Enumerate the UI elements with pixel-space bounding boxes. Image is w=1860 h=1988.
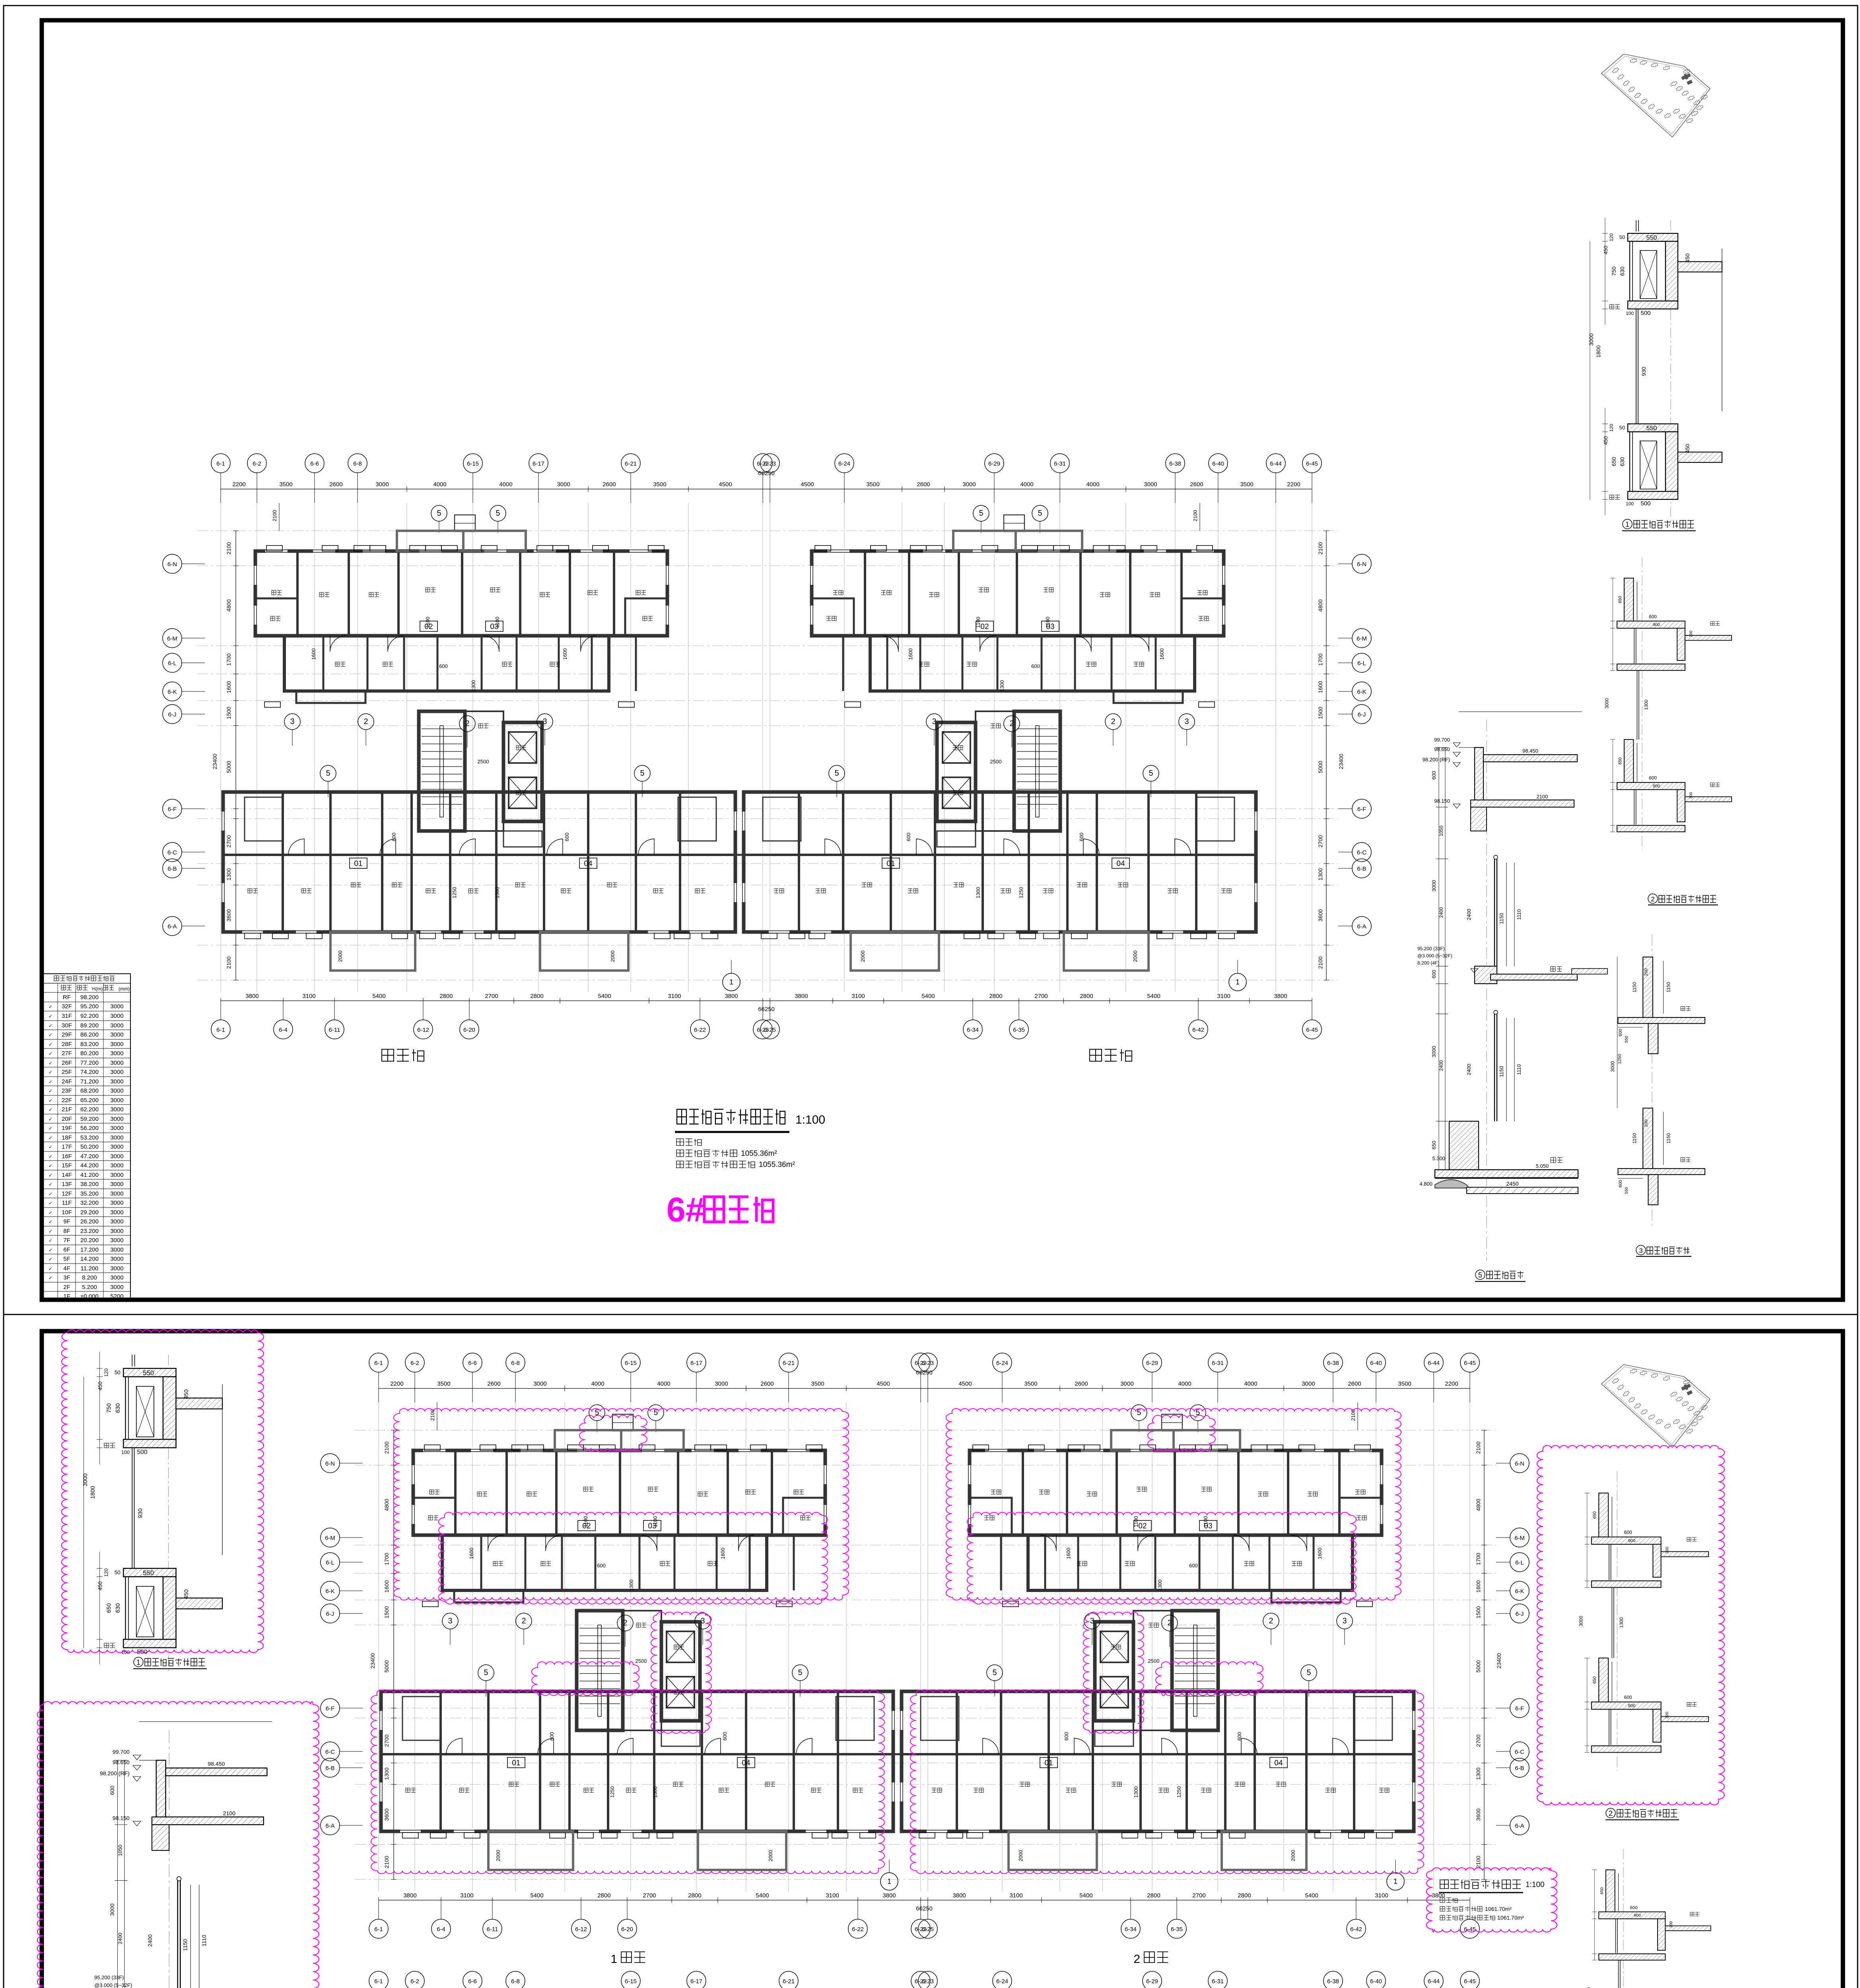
svg-text:95.200 (33F): 95.200 (33F) [94,1974,124,1980]
svg-text:29.200: 29.200 [80,1209,99,1216]
svg-text:2400: 2400 [1466,909,1472,920]
svg-text:1150: 1150 [1632,1133,1637,1144]
svg-text:1:100: 1:100 [795,1113,825,1126]
svg-text:3000: 3000 [110,1228,123,1235]
svg-text:2F: 2F [63,1284,70,1291]
svg-text:3000: 3000 [1578,1616,1584,1627]
svg-text:100: 100 [121,1650,130,1655]
svg-text:98.650: 98.650 [113,1759,130,1765]
svg-text:450: 450 [1603,246,1609,254]
svg-text:3000: 3000 [109,1903,115,1916]
svg-text:650: 650 [1611,457,1617,466]
svg-text:3000: 3000 [110,1200,123,1206]
svg-text:500: 500 [137,1449,148,1456]
svg-text:930: 930 [137,1508,144,1518]
svg-text:✓: ✓ [49,1013,52,1019]
svg-text:5.200: 5.200 [82,1284,97,1291]
svg-text:900: 900 [1653,784,1660,789]
svg-text:3F: 3F [63,1274,70,1281]
svg-text:✓: ✓ [49,1032,52,1038]
svg-text:✓: ✓ [49,1275,52,1281]
svg-text:30F: 30F [62,1022,72,1029]
svg-text:80.200: 80.200 [80,1050,99,1057]
svg-text:1250: 1250 [1617,1054,1622,1064]
svg-text:500: 500 [1640,310,1650,316]
svg-text:✓: ✓ [49,1116,52,1122]
svg-text:650: 650 [1618,757,1623,765]
svg-text:1:100: 1:100 [1526,1881,1545,1889]
svg-text:1150: 1150 [1498,913,1504,924]
svg-text:98.200 (RF): 98.200 (RF) [1423,757,1450,763]
svg-text:900: 900 [1653,623,1660,627]
svg-text:✓: ✓ [49,1135,52,1141]
svg-text:3000: 3000 [110,1134,123,1141]
svg-text:44.200: 44.200 [80,1162,99,1169]
svg-text:15F: 15F [62,1162,72,1169]
svg-text:3000: 3000 [110,1162,123,1169]
svg-text:3000: 3000 [110,1256,123,1262]
svg-text:(mm): (mm) [119,986,130,992]
svg-text:3000: 3000 [110,1022,123,1029]
svg-text:600: 600 [1630,1905,1638,1910]
svg-text:3000: 3000 [110,1116,123,1122]
svg-text:450: 450 [1684,253,1691,263]
svg-text:750: 750 [1611,266,1617,276]
svg-text:1800: 1800 [1595,345,1602,357]
svg-text:650: 650 [106,1603,113,1613]
svg-text:550: 550 [143,1369,154,1376]
svg-text:1F: 1F [63,1293,70,1300]
svg-text:1110: 1110 [1516,1064,1522,1075]
svg-text:630: 630 [1619,457,1625,466]
svg-text:29F: 29F [62,1031,72,1038]
svg-text:3000: 3000 [110,1265,123,1272]
svg-text:RF: RF [63,994,71,1001]
svg-text:26F: 26F [62,1060,72,1066]
svg-text:56.200: 56.200 [80,1125,99,1132]
svg-text:630: 630 [115,1603,121,1613]
svg-text:✓: ✓ [49,1023,52,1029]
svg-text:3000: 3000 [110,1237,123,1244]
svg-text:5: 5 [1478,1271,1482,1279]
svg-text:200: 200 [1644,1119,1649,1127]
svg-text:99.700: 99.700 [1434,737,1450,743]
svg-text:600: 600 [1618,1180,1623,1187]
svg-text:✓: ✓ [49,1256,52,1262]
svg-text:900: 900 [1634,1913,1641,1918]
svg-text:4.800: 4.800 [1419,1181,1432,1187]
svg-text:H(m): H(m) [92,986,103,992]
svg-text:±0.000: ±0.000 [80,1293,99,1300]
svg-text:27F: 27F [62,1050,72,1057]
svg-text:99.700: 99.700 [113,1749,130,1755]
svg-text:32.200: 32.200 [80,1200,99,1206]
svg-text:21F: 21F [62,1106,72,1113]
svg-text:✓: ✓ [49,1173,52,1178]
svg-text:2: 2 [1651,895,1654,903]
svg-text:3000: 3000 [1610,1061,1615,1072]
svg-text:3000: 3000 [110,1050,123,1057]
svg-text:3000: 3000 [110,1209,123,1216]
svg-text:450: 450 [1603,436,1609,445]
svg-text:650: 650 [1600,1887,1604,1895]
svg-text:650: 650 [1592,1676,1597,1683]
svg-text:3000: 3000 [110,1097,123,1104]
svg-text:120: 120 [1609,233,1614,241]
svg-text:100: 100 [1626,311,1634,316]
svg-text:98.150: 98.150 [113,1815,130,1821]
svg-text:✓: ✓ [49,1144,52,1150]
svg-text:450: 450 [97,1381,103,1390]
svg-text:5F: 5F [63,1256,70,1262]
svg-text:65.200: 65.200 [80,1097,99,1104]
svg-text:20F: 20F [62,1116,72,1122]
svg-text:89.200: 89.200 [80,1022,99,1029]
svg-text:600: 600 [1649,614,1657,619]
svg-text:450: 450 [183,1389,190,1399]
svg-text:2: 2 [1609,1809,1613,1817]
svg-text:23F: 23F [62,1087,72,1094]
svg-text:✓: ✓ [49,1238,52,1243]
svg-text:900: 900 [1628,1538,1635,1543]
svg-text:550: 550 [1625,1036,1629,1043]
svg-text:550: 550 [1625,1187,1629,1194]
svg-text:✓: ✓ [49,1079,52,1085]
svg-text:95.200 (33F): 95.200 (33F) [1417,946,1445,951]
svg-text:50: 50 [115,1569,121,1575]
svg-text:300: 300 [1669,1921,1673,1928]
svg-text:✓: ✓ [49,1098,52,1103]
svg-text:300: 300 [1665,1712,1670,1718]
svg-text:✓: ✓ [49,1107,52,1112]
svg-text:2: 2 [1133,1953,1140,1966]
svg-text:2400: 2400 [1438,907,1444,918]
svg-text:✓: ✓ [49,1229,52,1234]
svg-text:19F: 19F [62,1125,72,1132]
svg-text:17F: 17F [62,1143,72,1150]
svg-text:550: 550 [1646,425,1657,432]
svg-text:✓: ✓ [49,1200,52,1206]
svg-text:62.200: 62.200 [80,1106,99,1113]
svg-text:98.200: 98.200 [80,994,99,1001]
svg-text:✓: ✓ [49,1004,52,1010]
svg-text:50: 50 [1619,234,1625,240]
svg-text:1050: 1050 [1438,825,1444,836]
svg-text:300: 300 [1665,1547,1670,1553]
svg-text:750: 750 [106,1403,113,1413]
svg-text:28F: 28F [62,1041,72,1048]
svg-text:1110: 1110 [201,1935,207,1946]
svg-text:2100: 2100 [1537,794,1548,800]
svg-text:1061.70m²: 1061.70m² [1485,1906,1512,1912]
svg-text:650: 650 [1618,596,1623,603]
svg-text:50: 50 [115,1369,121,1375]
svg-text:600: 600 [1431,771,1437,780]
svg-text:10F: 10F [62,1209,72,1216]
svg-text:650: 650 [1592,1511,1597,1518]
svg-text:3: 3 [1639,1247,1642,1254]
svg-text:600: 600 [1649,776,1657,781]
svg-text:600: 600 [1624,1530,1632,1535]
svg-text:98.450: 98.450 [208,1761,225,1767]
svg-text:1300: 1300 [1644,699,1649,710]
svg-text:3000: 3000 [1588,333,1594,346]
svg-text:630: 630 [115,1403,121,1413]
svg-text:✓: ✓ [49,1219,52,1225]
svg-text:26.200: 26.200 [80,1218,99,1225]
svg-text:50: 50 [1619,425,1625,431]
svg-text:3000: 3000 [110,1143,123,1150]
svg-text:38.200: 38.200 [80,1181,99,1188]
svg-text:59.200: 59.200 [80,1116,99,1122]
svg-text:14.200: 14.200 [80,1256,99,1262]
svg-text:3000: 3000 [110,1060,123,1066]
svg-text:50.200: 50.200 [80,1143,99,1150]
svg-text:11F: 11F [62,1200,72,1206]
svg-text:31F: 31F [62,1013,72,1019]
svg-text:✓: ✓ [49,1163,52,1169]
svg-text:✓: ✓ [49,1070,52,1075]
svg-text:32F: 32F [62,1003,72,1010]
svg-text:18F: 18F [62,1134,72,1141]
svg-text:1800: 1800 [90,1486,96,1499]
svg-text:120: 120 [103,1569,109,1577]
svg-text:1050: 1050 [117,1845,123,1856]
svg-text:3000: 3000 [110,1246,123,1253]
svg-text:600: 600 [109,1786,115,1795]
svg-text:25F: 25F [62,1069,72,1076]
svg-text:3000: 3000 [110,1031,123,1038]
svg-text:3000: 3000 [110,1284,123,1291]
svg-text:✓: ✓ [49,1210,52,1215]
svg-text:2400: 2400 [1438,1060,1444,1071]
svg-text:35.200: 35.200 [80,1190,99,1197]
svg-text:✓: ✓ [49,1154,52,1159]
svg-text:1: 1 [136,1658,140,1666]
svg-text:3000: 3000 [110,1069,123,1076]
svg-text:11.200: 11.200 [81,1265,99,1272]
svg-text:300: 300 [1689,792,1693,799]
svg-text:600: 600 [1431,970,1437,978]
svg-text:✓: ✓ [49,1060,52,1066]
svg-text:930: 930 [1640,367,1647,376]
svg-text:550: 550 [143,1569,154,1576]
svg-text:24F: 24F [62,1078,72,1085]
svg-text:450: 450 [183,1589,190,1599]
svg-text:450: 450 [1684,444,1691,453]
svg-text:86.200: 86.200 [80,1031,99,1038]
svg-text:47.200: 47.200 [80,1153,99,1160]
svg-text:1150: 1150 [1666,982,1671,993]
svg-text:7F: 7F [63,1237,70,1244]
svg-text:✓: ✓ [49,1042,52,1047]
svg-text:3000: 3000 [110,1125,123,1132]
svg-text:100: 100 [121,1450,130,1455]
svg-text:6F: 6F [63,1246,70,1253]
svg-text:1: 1 [1625,520,1629,528]
svg-text:1110: 1110 [1516,909,1522,920]
svg-text:14F: 14F [62,1172,72,1178]
svg-text:✓: ✓ [49,1182,52,1187]
svg-text:2450: 2450 [1506,1180,1518,1187]
svg-text:53.200: 53.200 [80,1134,99,1141]
svg-text:✓: ✓ [49,1266,52,1272]
svg-text:71.200: 71.200 [80,1078,99,1085]
svg-text:98.150: 98.150 [1434,798,1450,804]
svg-text:3000: 3000 [82,1474,89,1487]
svg-text:100: 100 [1626,501,1634,507]
svg-text:2100: 2100 [223,1810,235,1816]
svg-text:3000: 3000 [110,1078,123,1085]
svg-text:500: 500 [1640,500,1650,507]
svg-text:1055.36m²: 1055.36m² [759,1161,795,1169]
svg-text:20.200: 20.200 [80,1237,99,1244]
svg-text:3000: 3000 [110,1153,123,1160]
svg-text:3000: 3000 [1431,1046,1437,1058]
svg-text:8.200: 8.200 [82,1274,97,1281]
svg-text:5.050: 5.050 [1536,1163,1549,1169]
svg-text:900: 900 [1628,1703,1635,1708]
svg-text:98.650: 98.650 [1434,746,1450,752]
svg-text:1061.70m²: 1061.70m² [1497,1914,1524,1921]
svg-text:2400: 2400 [147,1934,153,1947]
svg-text:98.450: 98.450 [1522,748,1538,754]
svg-text:3000: 3000 [110,1013,123,1019]
svg-text:23.200: 23.200 [80,1228,99,1235]
svg-text:650: 650 [1431,1141,1437,1149]
svg-text:41.200: 41.200 [80,1172,99,1178]
svg-text:200: 200 [1644,968,1649,976]
svg-text:120: 120 [1609,424,1614,432]
svg-text:450: 450 [97,1581,103,1590]
svg-text:✓: ✓ [49,1051,52,1056]
svg-text:@3.000 (5~32F): @3.000 (5~32F) [94,1982,132,1988]
svg-text:3000: 3000 [110,1172,123,1178]
svg-text:3000: 3000 [110,1181,123,1188]
svg-text:3000: 3000 [110,1218,123,1225]
svg-text:3000: 3000 [1431,880,1437,892]
svg-text:3000: 3000 [110,1003,123,1010]
svg-text:@3.000 (5~32F): @3.000 (5~32F) [1417,953,1452,959]
svg-text:630: 630 [1619,266,1625,276]
svg-text:3000: 3000 [110,1106,123,1113]
svg-text:550: 550 [1646,235,1657,241]
svg-text:83.200: 83.200 [80,1041,99,1048]
svg-text:1055.36m²: 1055.36m² [741,1149,777,1158]
svg-text:✓: ✓ [49,1088,52,1094]
svg-text:8.200 (4F): 8.200 (4F) [1417,960,1439,966]
svg-text:✓: ✓ [49,1247,52,1253]
svg-text:68.200: 68.200 [80,1087,99,1094]
svg-text:98.200 (RF): 98.200 (RF) [100,1770,130,1776]
svg-text:9F: 9F [63,1218,70,1225]
svg-text:12F: 12F [62,1190,72,1197]
svg-text:1150: 1150 [1632,982,1637,993]
svg-text:500: 500 [137,1649,148,1656]
svg-text:5200: 5200 [110,1293,123,1300]
svg-text:92.200: 92.200 [80,1013,99,1019]
svg-text:1: 1 [610,1953,617,1966]
svg-text:1150: 1150 [182,1939,189,1951]
svg-text:600: 600 [1624,1695,1632,1700]
svg-text:300: 300 [1689,631,1693,637]
svg-text:1150: 1150 [1498,1066,1504,1077]
svg-text:22F: 22F [62,1097,72,1104]
svg-text:74.200: 74.200 [80,1069,99,1076]
svg-text:2400: 2400 [117,1933,123,1944]
svg-text:3000: 3000 [110,1190,123,1197]
svg-text:6#: 6# [667,1191,705,1229]
svg-text:8F: 8F [63,1228,70,1235]
svg-text:3000: 3000 [110,1087,123,1094]
svg-text:16F: 16F [62,1153,72,1160]
svg-text:77.200: 77.200 [80,1060,99,1066]
svg-text:1150: 1150 [1666,1133,1671,1144]
svg-text:4F: 4F [63,1265,70,1272]
svg-text:1300: 1300 [1619,1617,1624,1628]
svg-text:3000: 3000 [1604,698,1609,709]
svg-text:17.200: 17.200 [80,1246,99,1253]
svg-text:✓: ✓ [49,1126,52,1131]
svg-text:13F: 13F [62,1181,72,1188]
svg-text:95.200: 95.200 [80,1003,99,1010]
svg-text:3000: 3000 [110,1041,123,1048]
svg-text:✓: ✓ [49,1191,52,1197]
svg-text:600: 600 [1618,1029,1623,1036]
svg-text:3000: 3000 [110,1274,123,1281]
svg-text:120: 120 [103,1369,109,1377]
svg-text:2400: 2400 [1466,1064,1472,1076]
